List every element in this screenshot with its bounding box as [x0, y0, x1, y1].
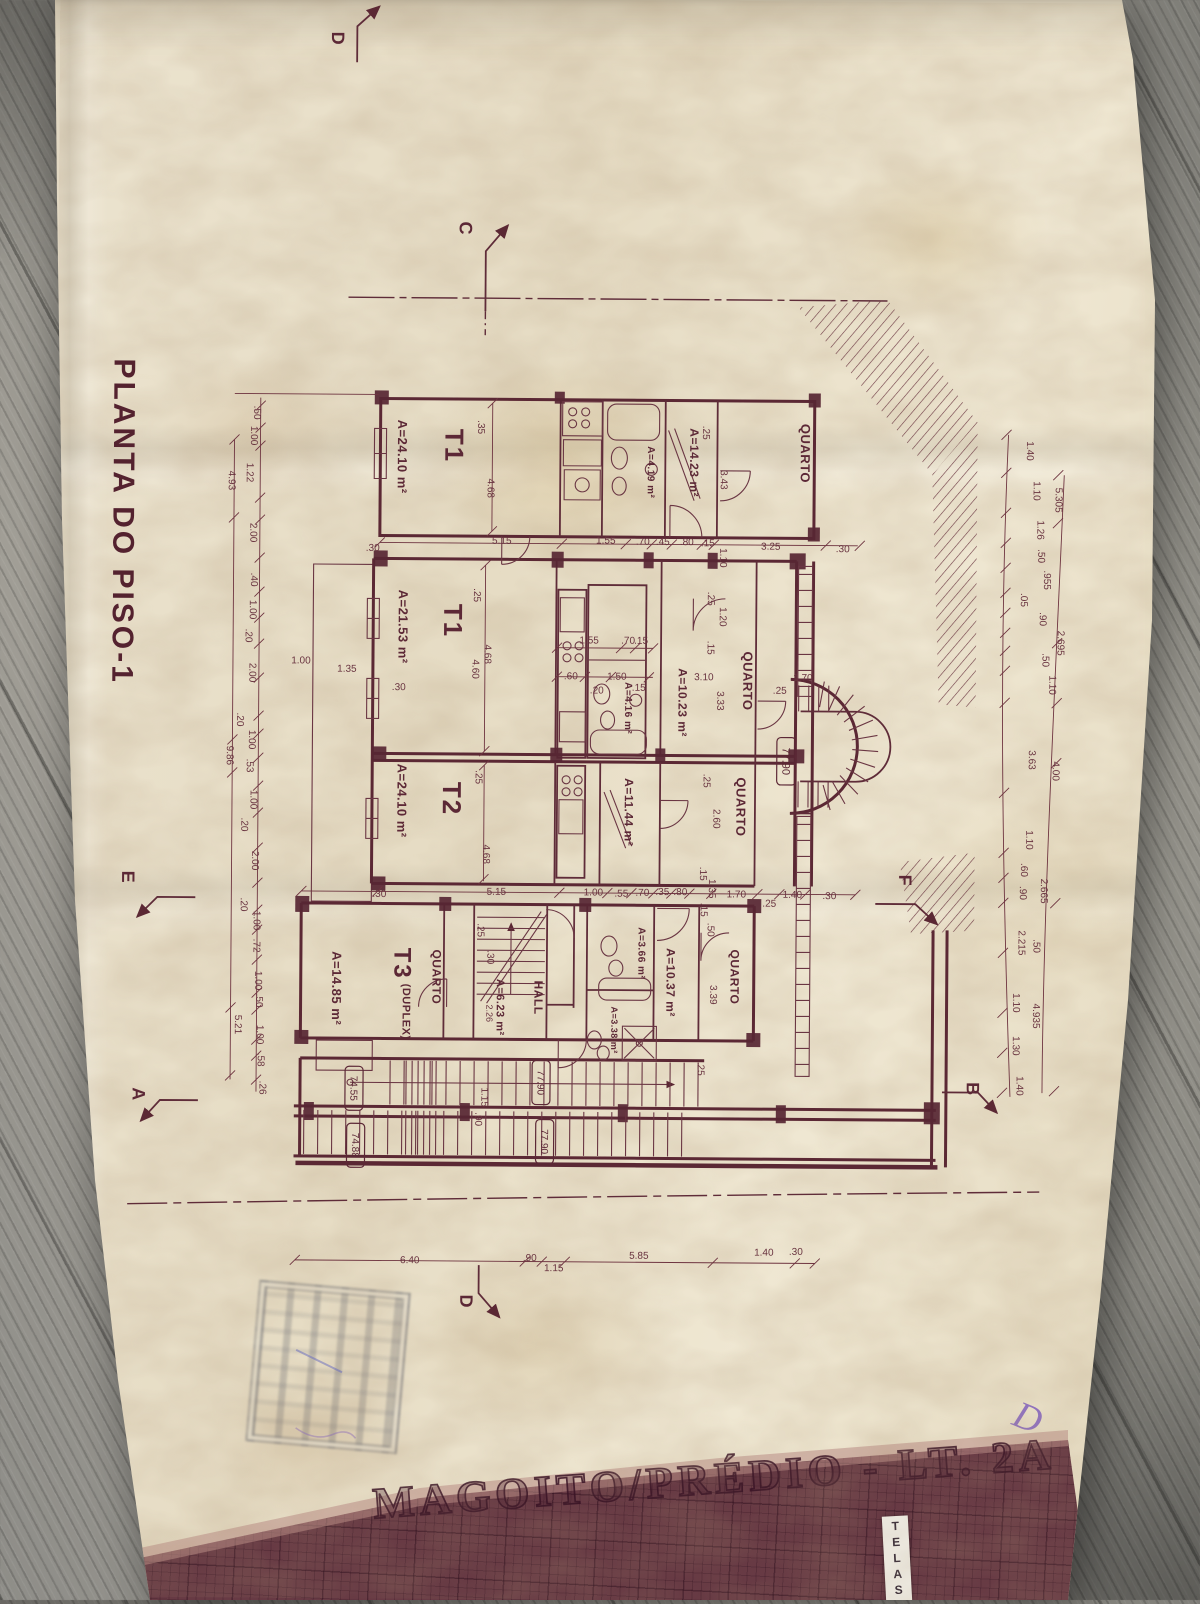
dim-label: .80	[680, 537, 694, 548]
dim-label: 1.40	[1013, 1076, 1024, 1096]
svg-text:.05: .05	[1018, 593, 1029, 607]
area-label: A=4.19 m²	[645, 446, 656, 498]
floor-plan-drawing: PLANTA DO PISO-1T1A=24.10 m²QUARTOA=14.2…	[0, 0, 1200, 1604]
svg-text:.26: .26	[256, 1081, 267, 1095]
svg-text:1.40: 1.40	[754, 1248, 774, 1259]
svg-text:.90: .90	[1037, 612, 1048, 626]
dim-label: .80	[673, 887, 687, 898]
dim-label: 4.93	[226, 471, 237, 491]
dim-label: .25	[705, 592, 716, 606]
dim-label: 5.305	[1053, 488, 1064, 514]
dim-label: .20	[234, 712, 245, 726]
svg-text:1.10: 1.10	[1031, 481, 1042, 501]
dim-label: .30	[822, 891, 836, 902]
svg-text:.72: .72	[250, 939, 261, 953]
dim-label: 1.40	[754, 1248, 774, 1259]
blueprint-paper: MAGOITO/PRÉDIO - LT. 2A TELAS D	[0, 0, 1200, 1600]
svg-text:2.00: 2.00	[246, 663, 257, 683]
svg-text:74.88: 74.88	[349, 1133, 360, 1159]
svg-text:.30: .30	[822, 891, 836, 902]
section-label: D	[328, 32, 348, 45]
dim-label: 2.00	[247, 523, 258, 543]
area-label: A=24.10 m²	[394, 764, 410, 838]
svg-text:1.10: 1.10	[1010, 993, 1021, 1013]
area-label: A=24.10 m²	[395, 420, 411, 494]
area-label: A=10.37 m²	[663, 948, 677, 1017]
svg-text:A=3.38 m²: A=3.38 m²	[609, 1006, 619, 1053]
svg-text:1.10: 1.10	[1046, 675, 1057, 695]
svg-text:1.55: 1.55	[596, 535, 616, 546]
dim-label: .25	[773, 686, 787, 697]
dim-label: 1.00	[247, 790, 258, 810]
dim-label: .15	[705, 641, 716, 655]
area-label: A=11.44 m²	[621, 778, 635, 846]
dim-label: 1.70	[793, 673, 813, 684]
section-label: D	[456, 1295, 476, 1308]
dim-label: 1.10	[1023, 830, 1034, 850]
svg-text:T1: T1	[438, 604, 468, 639]
svg-text:.955: .955	[1041, 570, 1052, 590]
svg-text:1.00: 1.00	[248, 426, 259, 446]
svg-text:A=4.19 m²: A=4.19 m²	[645, 446, 656, 498]
svg-text:.50: .50	[1035, 549, 1046, 563]
svg-text:4.935: 4.935	[1030, 1003, 1041, 1029]
svg-text:T3: T3	[388, 948, 415, 980]
svg-text:.60: .60	[564, 671, 578, 682]
svg-text:.20: .20	[243, 629, 254, 643]
svg-text:1.15: 1.15	[544, 1263, 564, 1274]
dim-label: .72	[250, 939, 261, 953]
svg-text:1.10: 1.10	[717, 548, 728, 568]
svg-text:4.00: 4.00	[1050, 761, 1061, 781]
dim-label: .40	[248, 573, 259, 587]
svg-text:3.63: 3.63	[1026, 750, 1037, 770]
dim-label: .90	[1017, 886, 1028, 900]
svg-text:1.55: 1.55	[579, 635, 599, 646]
area-label: (DUPLEX)	[399, 984, 411, 1040]
area-label: QUARTO	[733, 777, 748, 836]
svg-text:.25: .25	[701, 774, 712, 788]
svg-text:T1: T1	[439, 429, 469, 464]
dim-label: .90	[1037, 612, 1048, 626]
dim-label: 1.55	[596, 535, 616, 546]
dim-label: .30	[366, 543, 380, 554]
svg-text:77.90: 77.90	[779, 747, 791, 775]
svg-text:2.26: 2.26	[484, 1004, 494, 1022]
dim-label: .25	[762, 899, 776, 910]
dim-label: .26	[256, 1081, 267, 1095]
dim-label: .955	[1041, 570, 1052, 590]
dim-label: .15	[698, 903, 709, 917]
svg-text:.50: .50	[253, 994, 264, 1008]
svg-text:1.10: 1.10	[1023, 830, 1034, 850]
dim-label: .05	[1018, 593, 1029, 607]
dim-label: 3.63	[1026, 750, 1037, 770]
svg-text:A=24.10 m²: A=24.10 m²	[395, 420, 411, 494]
svg-text:2.695: 2.695	[1055, 631, 1066, 657]
svg-text:1.00: 1.00	[251, 911, 262, 931]
svg-text:D: D	[328, 32, 348, 45]
svg-text:3.43: 3.43	[718, 470, 729, 490]
svg-text:1.26: 1.26	[1034, 520, 1045, 540]
dim-label: .30	[372, 889, 386, 900]
svg-text:1.40: 1.40	[783, 890, 803, 901]
dim-label: 9.86	[224, 746, 235, 766]
svg-text:.25: .25	[473, 770, 484, 784]
paper-sheet-wrapper: MAGOITO/PRÉDIO - LT. 2A TELAS D	[0, 0, 1200, 1600]
dim-label: 2.00	[249, 851, 260, 871]
dim-label: .58	[255, 1053, 266, 1067]
photo-of-floor-plan: { "document": { "drawing_title": "PLANTA…	[0, 0, 1200, 1600]
svg-text:6.40: 6.40	[400, 1255, 420, 1266]
dim-label: 2.215	[1015, 930, 1026, 956]
room-label: T1	[438, 604, 468, 639]
dim-label: 6.40	[400, 1255, 420, 1266]
svg-text:.55: .55	[614, 889, 628, 900]
area-label: HALL	[531, 981, 545, 1015]
svg-text:.50: .50	[1030, 939, 1041, 953]
dim-label: 5.15	[487, 887, 507, 898]
dim-label: 4.60	[469, 659, 480, 679]
dim-label: 1.50	[607, 672, 627, 683]
dim-label: 1.00	[247, 600, 258, 620]
svg-text:4.93: 4.93	[226, 471, 237, 491]
area-label: A=14.23 m²	[687, 428, 701, 497]
svg-text:.15: .15	[698, 903, 709, 917]
svg-text:HALL: HALL	[531, 981, 545, 1015]
dim-label: .70	[636, 537, 650, 548]
svg-text:QUARTO: QUARTO	[733, 777, 748, 836]
svg-text:.45: .45	[656, 537, 670, 548]
dim-label: .60	[1018, 863, 1029, 877]
dim-label: 1.20	[717, 607, 728, 627]
dim-label: .70	[635, 888, 649, 899]
dim-label: .50	[705, 923, 716, 937]
svg-text:QUARTO: QUARTO	[740, 651, 755, 710]
dim-label: .30	[392, 682, 406, 693]
dim-label: .25	[473, 770, 484, 784]
svg-text:.50: .50	[1039, 653, 1050, 667]
svg-text:.50: .50	[705, 923, 716, 937]
svg-text:.58: .58	[255, 1053, 266, 1067]
svg-text:1.70: 1.70	[727, 889, 747, 900]
dim-label: 1.00	[252, 971, 263, 991]
svg-text:.25: .25	[471, 588, 482, 602]
svg-text:5.21: 5.21	[232, 1015, 243, 1035]
svg-text:A=21.53 m²: A=21.53 m²	[395, 590, 411, 664]
svg-text:.25: .25	[475, 923, 486, 937]
svg-text:C: C	[456, 221, 476, 234]
svg-text:QUARTO: QUARTO	[798, 424, 813, 483]
svg-text:.20: .20	[234, 712, 245, 726]
title-label: PLANTA DO PISO-1	[105, 358, 140, 685]
svg-text:A=10.37 m²: A=10.37 m²	[663, 948, 677, 1017]
dim-label: 1.00	[291, 655, 311, 666]
dim-label: .50	[1039, 653, 1050, 667]
dim-label: .15	[632, 683, 646, 694]
dim-label: 4.68	[485, 478, 496, 498]
svg-text:.80: .80	[673, 887, 687, 898]
svg-text:.15: .15	[701, 538, 715, 549]
svg-text:.30: .30	[372, 889, 386, 900]
dim-label: .20	[243, 629, 254, 643]
dim-label: .25	[701, 774, 712, 788]
dim-label: .35	[475, 420, 486, 434]
svg-text:2.00: 2.00	[249, 851, 260, 871]
svg-text:A=14.85 m²: A=14.85 m²	[329, 951, 345, 1025]
dim-label: .35	[655, 887, 669, 898]
svg-text:1.40: 1.40	[1024, 441, 1035, 461]
dim-label: 1.30	[1010, 1036, 1021, 1056]
svg-text:4.68: 4.68	[485, 478, 496, 498]
dim-label: .15	[701, 538, 715, 549]
dim-label: .50	[1035, 549, 1046, 563]
svg-text:1.40: 1.40	[1013, 1076, 1024, 1096]
svg-text:1.35: 1.35	[337, 664, 357, 675]
svg-text:QUARTO: QUARTO	[727, 950, 741, 1005]
svg-text:1.70: 1.70	[793, 673, 813, 684]
dim-label: 5.15	[492, 536, 512, 547]
svg-text:.25: .25	[705, 592, 716, 606]
dim-label: .30	[484, 950, 495, 964]
dim-label: 4.68	[481, 644, 492, 664]
dim-label: 1.10	[717, 548, 728, 568]
svg-text:1.00: 1.00	[584, 887, 604, 898]
svg-text:1.00: 1.00	[247, 790, 258, 810]
area-label: A=21.53 m²	[395, 590, 411, 664]
dim-label: .25	[695, 1062, 706, 1076]
dim-label: 1.10	[1010, 993, 1021, 1013]
dim-label: 2.695	[1055, 631, 1066, 657]
svg-text:2.00: 2.00	[247, 523, 258, 543]
dim-label: 3.43	[718, 470, 729, 490]
dim-label: .50	[1030, 939, 1041, 953]
svg-text:E: E	[118, 871, 138, 883]
dim-label: 2.00	[246, 663, 257, 683]
svg-text:.15: .15	[634, 636, 648, 647]
svg-text:.15: .15	[632, 683, 646, 694]
svg-text:5.85: 5.85	[629, 1251, 649, 1262]
svg-text:.25: .25	[773, 686, 787, 697]
svg-text:5.15: 5.15	[487, 887, 507, 898]
svg-text:4.68: 4.68	[480, 844, 491, 864]
section-label: C	[456, 221, 476, 234]
svg-text:.80: .80	[680, 537, 694, 548]
svg-text:.70: .70	[635, 888, 649, 899]
dim-label: 1.40	[783, 890, 803, 901]
svg-text:.20: .20	[590, 685, 604, 696]
svg-text:.25: .25	[762, 899, 776, 910]
svg-text:1.20: 1.20	[717, 607, 728, 627]
section-label: A	[129, 1087, 149, 1100]
dim-label: 1.22	[244, 463, 255, 483]
svg-text:77.90: 77.90	[534, 1070, 545, 1096]
section-label: F	[895, 875, 915, 886]
dim-label: .25	[700, 426, 711, 440]
svg-text:.60: .60	[1018, 863, 1029, 877]
svg-text:A=14.23 m²: A=14.23 m²	[687, 428, 701, 497]
dim-label: .20	[238, 818, 249, 832]
svg-text:3.25: 3.25	[761, 542, 781, 553]
svg-text:PLANTA DO PISO-1: PLANTA DO PISO-1	[105, 358, 140, 685]
dim-label: 1.40	[1024, 441, 1035, 461]
svg-text:4.60: 4.60	[469, 659, 480, 679]
area-label: A=3.66 m²	[635, 927, 646, 979]
dim-label: 1.35	[337, 664, 357, 675]
svg-text:.40: .40	[248, 573, 259, 587]
dim-label: .15	[634, 636, 648, 647]
svg-text:1.00: 1.00	[254, 1025, 265, 1045]
svg-text:.30: .30	[366, 543, 380, 554]
room-label: T1	[439, 429, 469, 464]
svg-text:.90: .90	[472, 1112, 483, 1126]
svg-text:.20: .20	[238, 898, 249, 912]
svg-text:1.35: 1.35	[706, 879, 717, 899]
dim-label: 1.15	[478, 1087, 489, 1107]
dim-label: 2.26	[484, 1004, 494, 1022]
area-label: QUARTO	[798, 424, 813, 483]
svg-text:3.39: 3.39	[707, 985, 718, 1005]
svg-text:A=10.23 m²: A=10.23 m²	[675, 668, 689, 737]
svg-text:1.00: 1.00	[291, 655, 311, 666]
svg-text:A=3.66 m²: A=3.66 m²	[635, 927, 646, 979]
svg-text:.90: .90	[523, 1253, 537, 1264]
dim-label: 4.00	[1050, 761, 1061, 781]
svg-text:.25: .25	[700, 426, 711, 440]
dim-label: .90	[523, 1253, 537, 1264]
dim-label: 3.25	[761, 542, 781, 553]
svg-text:5.15: 5.15	[492, 536, 512, 547]
paper-mottling	[49, 0, 1160, 1604]
dim-label: 1.00	[246, 730, 257, 750]
dim-label: 1.00	[248, 426, 259, 446]
dim-label: .25	[471, 588, 482, 602]
dim-label: 2.60	[710, 809, 721, 829]
svg-text:1.15: 1.15	[478, 1087, 489, 1107]
area-label: A=3.38 m²	[609, 1006, 619, 1053]
area-label: QUARTO	[429, 949, 443, 1004]
svg-text:T2: T2	[437, 782, 467, 817]
dim-label: 1.55	[579, 635, 599, 646]
svg-text:9.86: 9.86	[224, 746, 235, 766]
dim-label: 3.33	[714, 691, 725, 711]
dim-label: .30	[789, 1247, 803, 1258]
svg-text:.35: .35	[475, 420, 486, 434]
svg-text:(DUPLEX): (DUPLEX)	[399, 984, 411, 1040]
room-label: T2	[437, 782, 467, 817]
svg-text:3.33: 3.33	[714, 691, 725, 711]
room-label: T3	[388, 948, 415, 980]
dim-label: 3.39	[707, 985, 718, 1005]
svg-text:.35: .35	[655, 887, 669, 898]
dim-label: .25	[475, 923, 486, 937]
svg-text:.50: .50	[251, 406, 262, 420]
section-label: E	[118, 871, 138, 883]
section-label: B	[963, 1082, 983, 1095]
area-label: A=10.23 m²	[675, 668, 689, 737]
dim-label: 2.665	[1038, 879, 1049, 905]
svg-text:QUARTO: QUARTO	[429, 949, 443, 1004]
svg-text:.20: .20	[238, 818, 249, 832]
dim-label: .90	[472, 1112, 483, 1126]
dim-label: 5.21	[232, 1015, 243, 1035]
svg-text:D: D	[456, 1295, 476, 1308]
svg-text:4.68: 4.68	[481, 644, 492, 664]
dim-label: .50	[251, 406, 262, 420]
svg-text:1.00: 1.00	[247, 600, 258, 620]
svg-text:.90: .90	[1017, 886, 1028, 900]
svg-text:3.10: 3.10	[694, 672, 714, 683]
dim-label: 1.00	[584, 887, 604, 898]
dim-label: 1.26	[1034, 520, 1045, 540]
svg-text:2.215: 2.215	[1015, 930, 1026, 956]
svg-text:.25: .25	[695, 1062, 706, 1076]
svg-text:1.22: 1.22	[244, 463, 255, 483]
dim-label: 1.35	[706, 879, 717, 899]
svg-text:A=11.44 m²: A=11.44 m²	[621, 778, 635, 846]
dim-label: .53	[244, 759, 255, 773]
dim-label: .30	[836, 544, 850, 555]
dim-label: 1.00	[254, 1025, 265, 1045]
dim-label: .20	[238, 898, 249, 912]
dim-label: 1.70	[727, 889, 747, 900]
svg-text:1.00: 1.00	[252, 971, 263, 991]
svg-text:5.305: 5.305	[1053, 488, 1064, 514]
dim-label: .50	[253, 994, 264, 1008]
svg-text:.53: .53	[244, 759, 255, 773]
dim-label: 1.10	[1046, 675, 1057, 695]
svg-text:.30: .30	[789, 1247, 803, 1258]
svg-text:77.90: 77.90	[538, 1129, 549, 1155]
dim-label: 1.00	[251, 911, 262, 931]
area-label: QUARTO	[727, 950, 741, 1005]
dim-label: .20	[590, 685, 604, 696]
svg-text:A: A	[129, 1087, 149, 1100]
svg-text:2.60: 2.60	[710, 809, 721, 829]
svg-text:1.50: 1.50	[607, 672, 627, 683]
svg-text:2.665: 2.665	[1038, 879, 1049, 905]
dim-label: 4.935	[1030, 1003, 1041, 1029]
area-label: QUARTO	[740, 651, 755, 710]
svg-text:74.55: 74.55	[347, 1076, 358, 1102]
svg-text:B: B	[963, 1082, 983, 1095]
dim-label: 1.15	[544, 1263, 564, 1274]
svg-text:.15: .15	[705, 641, 716, 655]
svg-text:1.30: 1.30	[1010, 1036, 1021, 1056]
svg-text:.30: .30	[392, 682, 406, 693]
dim-label: .45	[656, 537, 670, 548]
svg-text:F: F	[895, 875, 915, 886]
svg-text:1.00: 1.00	[246, 730, 257, 750]
svg-text:A=24.10 m²: A=24.10 m²	[394, 764, 410, 838]
dim-label: .60	[564, 671, 578, 682]
area-label: A=14.85 m²	[329, 951, 345, 1025]
dim-label: 4.68	[480, 844, 491, 864]
dim-label: 1.10	[1031, 481, 1042, 501]
dim-label: .55	[614, 889, 628, 900]
dim-label: 3.10	[694, 672, 714, 683]
svg-text:.30: .30	[484, 950, 495, 964]
dim-label: 5.85	[629, 1251, 649, 1262]
svg-text:.70: .70	[636, 537, 650, 548]
svg-text:.30: .30	[836, 544, 850, 555]
